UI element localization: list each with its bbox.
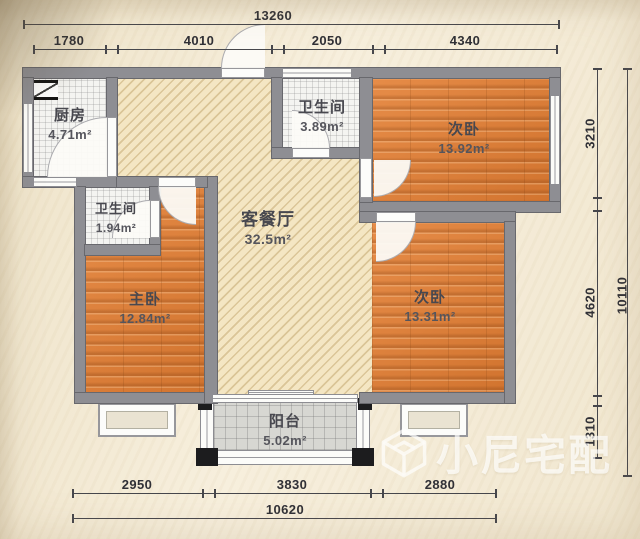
room-name: 卫生间 bbox=[83, 199, 149, 219]
floor-plan: 厨房 4.71m² 卫生间 3.89m² 次卧 13.92m² 卫生间 1.94… bbox=[0, 0, 640, 539]
dim-tick bbox=[593, 210, 602, 212]
watermark-cube-icon bbox=[378, 427, 430, 479]
room-area: 13.92m² bbox=[378, 140, 550, 158]
wall-bathroom1-left bbox=[272, 78, 282, 158]
dim-tick bbox=[623, 68, 632, 70]
dim-tick bbox=[382, 489, 384, 498]
room-name: 卫生间 bbox=[282, 98, 362, 118]
wall-bathroom2-bottom bbox=[85, 245, 160, 255]
dim-tick bbox=[495, 514, 497, 523]
room-area: 12.84m² bbox=[95, 310, 195, 328]
dim-tick bbox=[384, 45, 386, 54]
dim-line bbox=[33, 49, 558, 50]
balcony-corner-post bbox=[352, 448, 374, 466]
balcony-sliding-door bbox=[212, 394, 358, 403]
living-dining-label: 客餐厅 32.5m² bbox=[212, 210, 324, 248]
dim-tick bbox=[283, 45, 285, 54]
master-bay-window bbox=[98, 403, 176, 437]
room-name: 次卧 bbox=[378, 120, 550, 140]
entry-door-leaf bbox=[221, 68, 265, 78]
dim-tick bbox=[202, 489, 204, 498]
dim-tick bbox=[72, 489, 74, 498]
bay-window-sill bbox=[106, 411, 168, 429]
dim-tick bbox=[593, 395, 602, 397]
dim-bottom-2: 3830 bbox=[257, 477, 327, 492]
dim-top-4: 4340 bbox=[430, 33, 500, 48]
bathroom2-label: 卫生间 1.94m² bbox=[83, 199, 149, 237]
dim-tick bbox=[23, 20, 25, 29]
wall-bottom-left bbox=[75, 393, 210, 403]
kitchen-fixture-icon bbox=[34, 80, 58, 100]
dim-line bbox=[72, 518, 497, 519]
bedroom2-right-window bbox=[550, 95, 560, 185]
dim-top-2: 4010 bbox=[164, 33, 234, 48]
dim-top-total: 13260 bbox=[243, 8, 303, 23]
bedroom3-label: 次卧 13.31m² bbox=[378, 288, 482, 326]
dim-line bbox=[72, 493, 497, 494]
bedroom2-door-leaf bbox=[360, 158, 372, 198]
dim-tick bbox=[117, 45, 119, 54]
dim-tick bbox=[556, 45, 558, 54]
dim-tick bbox=[623, 475, 632, 477]
wall-bottom-right bbox=[360, 393, 515, 403]
bedroom2-label: 次卧 13.92m² bbox=[378, 120, 550, 158]
dim-right-total: 10110 bbox=[615, 267, 630, 325]
dim-tick bbox=[271, 45, 273, 54]
bathroom1-door-leaf bbox=[292, 148, 330, 158]
balcony-sliding-panel bbox=[248, 390, 314, 395]
bathroom1-top-window bbox=[282, 68, 352, 78]
dim-tick bbox=[370, 489, 372, 498]
bathroom2-door-leaf bbox=[150, 200, 160, 238]
balcony-label: 阳台 5.02m² bbox=[214, 412, 356, 450]
dim-tick bbox=[558, 20, 560, 29]
wall-right-lower bbox=[505, 222, 515, 403]
room-area: 32.5m² bbox=[212, 230, 324, 248]
room-name: 厨房 bbox=[33, 106, 107, 126]
room-area: 1.94m² bbox=[83, 219, 149, 237]
balcony-bottom-window bbox=[198, 450, 372, 465]
kitchen-door-leaf bbox=[107, 117, 117, 177]
dim-tick bbox=[593, 68, 602, 70]
dim-right-1: 3210 bbox=[583, 105, 598, 163]
kitchen-left-window bbox=[23, 103, 33, 173]
room-name: 阳台 bbox=[214, 412, 356, 432]
room-name: 主卧 bbox=[95, 290, 195, 310]
dim-tick bbox=[105, 45, 107, 54]
dim-line bbox=[23, 24, 560, 25]
bathroom1-label: 卫生间 3.89m² bbox=[282, 98, 362, 136]
balcony-corner-post bbox=[196, 448, 218, 466]
wall-bedroom2-bottom bbox=[360, 202, 560, 212]
dim-top-1: 1780 bbox=[39, 33, 99, 48]
room-name: 客餐厅 bbox=[212, 210, 324, 230]
room-area: 4.71m² bbox=[33, 126, 107, 144]
bedroom3-door-leaf bbox=[376, 212, 416, 222]
dim-tick bbox=[214, 489, 216, 498]
room-name: 次卧 bbox=[378, 288, 482, 308]
watermark: 小尼宅配 bbox=[378, 422, 612, 483]
room-area: 3.89m² bbox=[282, 118, 362, 136]
dim-right-2: 4620 bbox=[583, 274, 598, 332]
dim-bottom-1: 2950 bbox=[102, 477, 172, 492]
dim-tick bbox=[593, 197, 602, 199]
dim-top-3: 2050 bbox=[292, 33, 362, 48]
dim-tick bbox=[495, 489, 497, 498]
room-area: 13.31m² bbox=[378, 308, 482, 326]
master-door-leaf bbox=[158, 177, 196, 187]
dim-tick bbox=[33, 45, 35, 54]
kitchen-label: 厨房 4.71m² bbox=[33, 106, 107, 144]
dim-bottom-total: 10620 bbox=[250, 502, 320, 517]
kitchen-bottom-window bbox=[33, 177, 77, 187]
dim-tick bbox=[372, 45, 374, 54]
room-area: 5.02m² bbox=[214, 432, 356, 450]
watermark-text: 小尼宅配 bbox=[436, 422, 612, 483]
dim-tick bbox=[72, 514, 74, 523]
master-bedroom-label: 主卧 12.84m² bbox=[95, 290, 195, 328]
